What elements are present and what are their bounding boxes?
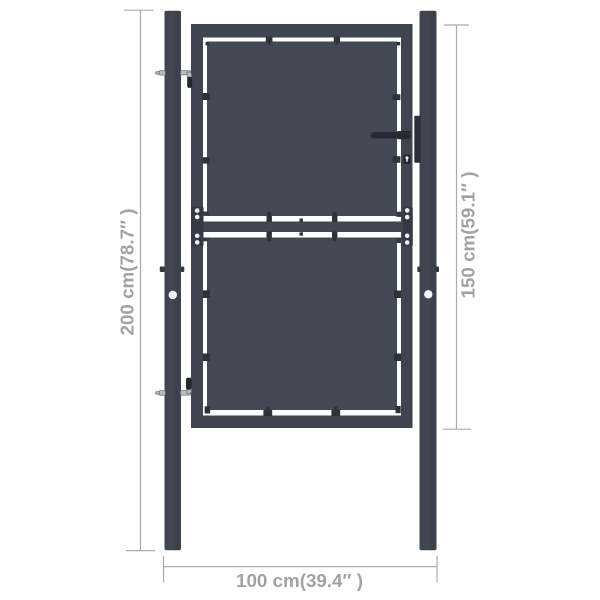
svg-text:200 cm(78.7″ ): 200 cm(78.7″ ) [117,209,138,336]
svg-text:100 cm(39.4″ ): 100 cm(39.4″ ) [236,570,363,591]
svg-text:150 cm(59.1″ ): 150 cm(59.1″ ) [458,172,479,299]
